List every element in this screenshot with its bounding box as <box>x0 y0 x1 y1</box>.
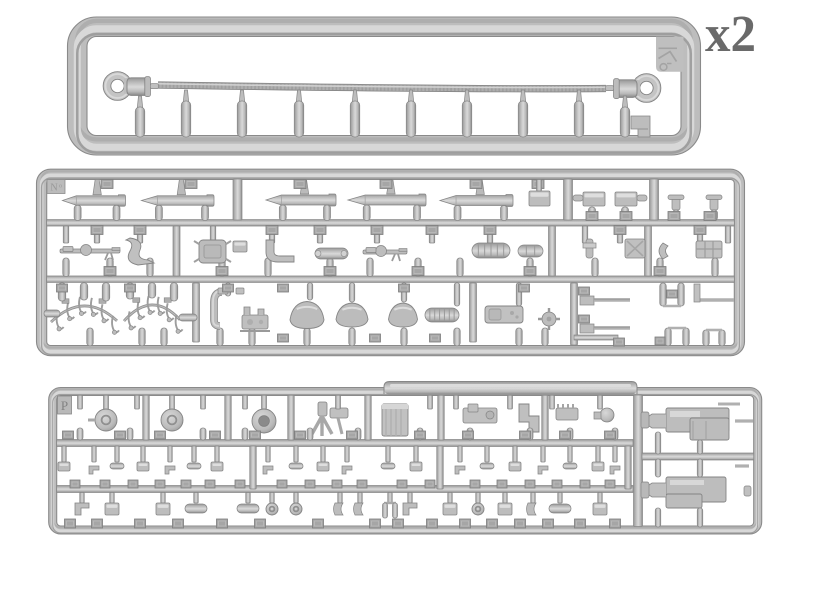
svg-text:N: N <box>50 183 58 194</box>
svg-text:x2: x2 <box>705 6 756 63</box>
svg-text:P: P <box>61 398 68 413</box>
svg-text:o: o <box>59 183 62 190</box>
